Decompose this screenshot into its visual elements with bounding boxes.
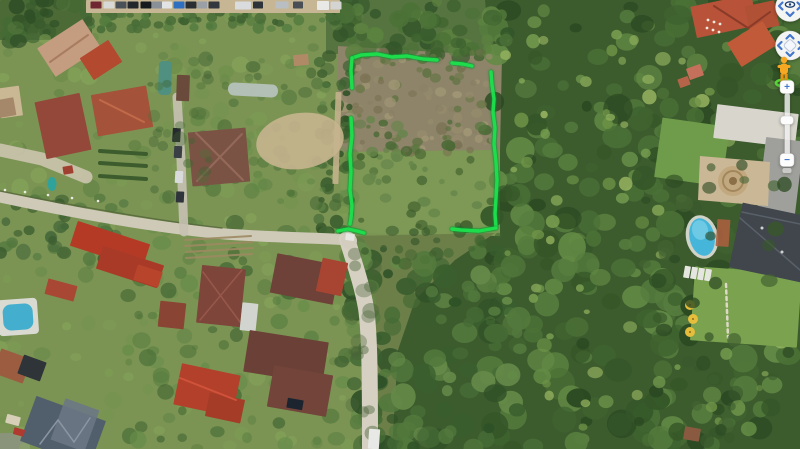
bottom-center-forest-blob [426,286,438,297]
plot-scrub-speckle-blob [352,106,363,114]
plot-bushes-blob [366,147,378,157]
bottom-center-forest-blob [513,344,527,355]
zoom-slider-handle[interactable] [781,116,794,125]
forest-right-blob [681,46,695,59]
forest-highlights-blob [623,321,637,333]
forest-highlights-blob [674,364,680,370]
garden-shed [176,75,190,101]
forest-right-blob [741,422,757,437]
right-overhang-blob [692,401,702,411]
plot-bushes-blob [366,116,375,124]
forest-highlights-blob [540,129,550,139]
left-sparse-blob [246,213,257,223]
forest-right-blob [604,358,632,381]
house-roof [158,301,187,330]
bottom-center-forest-blob [509,403,525,416]
plot-scrub-speckle-blob [355,84,365,93]
parked-van [276,2,289,9]
left-sparse-blob [70,353,81,361]
plot-bushes-blob [450,190,457,196]
mid-left-trees-blob [313,436,322,445]
right-overhang-blob [727,333,741,347]
pegman-arms [778,65,791,68]
left-sparse-blob [177,328,193,343]
parked-truck [317,1,329,10]
zoom-in-label: + [784,82,790,93]
forest-right-blob [535,292,560,317]
plot-scrub-speckle-blob [353,103,359,108]
right-overhang-blob [736,160,747,171]
left-sparse-blob [171,44,189,59]
plot-bushes-blob [392,154,400,162]
left-corner-dark-blob [26,33,40,44]
mid-left-trees-blob [139,349,157,366]
plot-scrub-speckle-blob [455,123,461,128]
forest-highlights-blob [652,205,664,216]
plot-scrub-speckle-blob [378,79,384,84]
right-overhang-blob [777,177,792,192]
forest-right-blob [670,378,688,391]
house-annex [240,302,259,332]
plot-scrub-speckle-blob [435,105,444,112]
forest-highlights-blob [542,380,551,388]
satellite-imagery[interactable]: + − [0,0,800,449]
plot-bushes-blob [474,181,486,191]
plot-scrub-speckle-blob [373,106,382,114]
right-overhang-blob [665,175,683,188]
parked-car [128,2,139,9]
plot-scrub-speckle-blob [471,109,483,118]
garden-trees-blob [198,52,213,67]
plot-scrub-speckle-blob [360,140,365,145]
plot-scrub-speckle-blob [483,80,491,87]
top-band-trees-blob [499,34,512,47]
bottom-center-forest-blob [502,297,512,305]
parked-car [162,2,172,9]
left-sparse-blob [143,384,154,395]
plot-bushes-blob [415,224,421,229]
right-overhang-blob [724,432,735,443]
left-sparse-blob [355,13,363,21]
lane-overhang-blob [162,190,175,203]
forest-highlights-blob [540,111,547,119]
forest-highlights-blob [587,367,603,378]
forest-highlights-blob [576,284,584,292]
plot-scrub-speckle-blob [475,135,483,143]
forest-highlights-blob [519,78,525,84]
lane-overhang-blob [148,110,160,122]
mid-left-trees-blob [135,421,148,432]
garden-trees-blob [247,131,255,139]
forest-highlights-blob [689,97,701,107]
parked-car [174,146,183,158]
plot-bottom-trees-blob [409,228,419,236]
forest-highlights-blob [620,121,628,128]
garden-trees-blob [281,84,288,90]
right-overhang-blob [715,424,726,436]
forest-highlights-blob [655,52,671,66]
mid-left-trees-blob [242,432,252,443]
forest-right-blob [552,407,576,433]
zoom-slider-track[interactable] [785,93,791,157]
right-overhang-blob [739,176,749,184]
plot-bushes-blob [409,161,414,166]
forest-highlights-blob [635,216,649,229]
left-sparse-blob [15,121,23,127]
left-sparse-blob [7,21,24,34]
forest-highlights-blob [641,149,651,158]
plot-scrub-speckle-blob [453,113,463,123]
bottom-center-forest-blob [412,363,435,387]
left-sparse-blob [339,395,346,401]
plot-scrub-speckle-blob [452,91,462,98]
forest-highlights-blob [678,58,685,65]
plot-scrub-speckle-blob [419,84,428,92]
right-overhang-blob [676,196,694,212]
forest-right-blob [657,88,669,99]
bottom-center-forest-blob [438,429,453,445]
right-overhang-blob [657,240,674,257]
left-sparse-blob [153,33,159,39]
plot-bushes-blob [408,201,421,212]
lane-overhang-blob [189,138,196,145]
mid-left-trees-blob [273,296,281,305]
left-sparse-blob [136,42,147,53]
left-sparse-blob [54,89,65,97]
forest-right-blob [750,63,773,86]
hedge-row-blob [166,16,176,26]
below-road-trees-blob [24,226,35,236]
right-overhang-blob [705,332,714,341]
umbrella-pole [689,331,691,333]
mid-left-trees-blob [286,190,295,197]
lane-overhang-blob [152,165,160,172]
right-overhang-blob [669,255,680,263]
forest-highlights-blob [619,177,633,191]
hedge-row-blob [189,24,198,32]
plot-bushes-blob [422,167,428,173]
plot-left-treerow-blob [346,104,352,110]
pegman-icon[interactable] [781,57,787,63]
garden-trees-blob [246,61,261,72]
plot-bottom-trees-blob [495,233,502,239]
forest-highlights-blob [599,395,614,408]
right-overhang-blob [686,297,700,308]
forest-right-blob [515,80,537,98]
house-roof [683,426,701,442]
left-sparse-blob [67,67,82,82]
below-road-trees-blob [94,194,106,203]
mid-left-trees-blob [177,433,187,442]
garden-trees-blob [310,196,323,210]
left-corner-dark-blob [26,14,36,24]
fence-post [47,194,50,197]
plot-bushes-blob [381,159,394,169]
garden-trees-blob [254,73,262,81]
bottom-center-forest-blob [350,415,364,430]
top-band-trees-blob [370,9,381,19]
plot-bottom-trees-blob [386,226,399,236]
plot-bushes-blob [417,176,428,186]
forest-highlights-blob [535,285,545,293]
plot-bottom-trees-blob [429,251,437,257]
lane-overhang-blob [196,82,206,89]
aerial-scene [0,0,800,449]
left-sparse-blob [101,409,113,422]
umbrella-pole [692,318,694,320]
gate [345,233,355,241]
below-road-trees-blob [14,230,23,237]
right-overhang-blob [649,274,666,289]
top-band-trees-blob [483,10,502,26]
left-sparse-blob [259,251,272,262]
below-road-trees-blob [53,221,67,234]
hedge-row-blob [206,21,217,31]
garden-trees-blob [258,179,273,191]
plot-bottom-trees-blob [476,237,485,246]
outline-left-upper [351,58,352,88]
plot-left-treerow-blob [326,169,333,175]
garden-trees-blob [249,157,259,166]
left-sparse-blob [35,267,47,277]
garden-trees-blob [298,87,312,98]
bottom-center-forest-blob [436,314,447,324]
plot-scrub-speckle-blob [430,136,435,140]
forest-right-blob [588,49,609,65]
bottom-center-forest-blob [442,385,453,396]
plot-scrub-speckle-blob [476,100,487,108]
bottom-center-forest-blob [387,414,398,424]
parked-car [176,191,185,202]
mid-left-trees-blob [130,431,147,449]
lane-overhang-blob [183,159,193,168]
road-tree-shadows-blob [349,261,361,272]
mid-left-trees-blob [120,289,135,302]
dormer-window [707,19,710,22]
left-sparse-blob [78,267,94,283]
plot-bottom-trees-blob [421,227,430,236]
bottom-center-forest-blob [484,324,509,343]
driveway-medallion-center [729,177,737,185]
forest-highlights-blob [603,178,616,190]
lane-overhang-blob [199,149,211,158]
hedge-row-blob [293,15,304,26]
hedge-row-blob [319,17,325,22]
parked-car [175,171,184,183]
plot-scrub-speckle-blob [412,138,423,146]
below-road-trees-blob [48,236,57,245]
lane-overhang-blob [155,82,164,91]
plot-bottom-trees-blob [411,238,420,246]
right-overhang-blob [761,274,778,287]
garden-trees-blob [277,198,284,204]
lane-overhang-blob [158,141,169,151]
plot-bushes-blob [385,141,396,150]
mid-left-trees-blob [271,314,288,329]
forest-highlights-blob [546,236,555,245]
plot-bushes-blob [384,131,392,139]
mid-left-trees-blob [157,384,174,400]
mid-left-trees-blob [134,311,142,319]
forest-right-blob [622,152,638,167]
forest-highlights-blob [567,175,579,184]
left-sparse-blob [3,48,13,57]
forest-right-blob [528,50,542,64]
bottom-center-forest-blob [444,248,454,258]
left-sparse-blob [163,413,175,423]
forest-right-blob [660,98,679,118]
forest-right-blob [703,387,721,404]
left-corner-dark-blob [10,34,27,48]
forest-highlights-blob [546,333,554,339]
mid-left-trees-blob [180,345,197,358]
map-viewport[interactable]: + − [0,0,800,449]
parked-car [104,2,115,9]
plot-scrub-speckle-blob [426,95,432,100]
plot-bushes-blob [357,153,365,160]
left-sparse-blob [248,415,257,424]
left-sparse-blob [140,200,152,210]
right-overhang-blob [702,182,716,194]
left-sparse-blob [104,392,121,409]
garden-trees-blob [306,68,316,79]
forest-right-blob [716,76,738,98]
forest-right-blob [517,236,536,255]
plot-scrub-speckle-blob [428,119,434,125]
forest-highlights-blob [500,50,511,60]
mid-left-trees-blob [329,316,339,326]
forest-right-blob [743,89,762,104]
garden-trees-blob [281,90,297,106]
plot-bushes-blob [475,122,487,131]
dormer-window [713,21,716,24]
forest-highlights-blob [537,338,552,352]
parked-car [174,2,185,9]
forest-right-blob [578,210,601,234]
forest-right-blob [480,206,503,227]
left-sparse-blob [3,275,11,284]
forest-right-blob [590,269,611,286]
plot-scrub-speckle-blob [390,62,396,66]
left-sparse-blob [154,426,165,435]
plot-scrub-speckle-blob [435,87,446,97]
forest-highlights-blob [756,385,762,391]
hedge-row-blob [275,20,285,27]
mid-left-trees-blob [230,328,243,342]
mid-left-trees-blob [157,436,165,443]
forest-highlights-blob [706,402,717,412]
plot-scrub-speckle-blob [469,50,474,56]
road-tree-shadows-blob [345,312,359,325]
bottom-center-forest-blob [507,371,517,380]
road-tree-shadows-blob [355,284,372,298]
top-band-trees-blob [465,8,480,19]
bottom-center-forest-blob [501,255,526,277]
fence-post [97,200,100,203]
forest-highlights-blob [576,75,586,84]
right-overhang-blob [682,356,696,367]
bottom-center-forest-blob [452,347,468,359]
garden-trees-blob [307,178,315,184]
mid-left-trees-blob [328,432,345,445]
plot-bushes-blob [472,201,483,209]
forest-right-blob [579,178,600,197]
bottom-center-forest-blob [347,377,362,390]
forest-highlights-blob [705,88,715,96]
plot-bottom-trees-blob [395,245,403,254]
left-sparse-blob [199,38,206,44]
right-overhang-blob [783,347,795,358]
right-overhang-blob [707,163,716,171]
right-overhang-blob [696,356,710,371]
forest-right-blob [542,143,563,159]
hedge-row-blob [154,21,164,28]
right-overhang-blob [697,259,707,268]
parked-truck [331,2,342,10]
parked-van [235,2,251,10]
right-overhang-blob [728,386,743,401]
bottom-center-forest-blob [388,352,405,367]
below-road-trees-blob [7,240,16,248]
bottom-center-forest-blob [488,307,500,316]
right-overhang-blob [767,222,784,237]
plot-scrub-speckle-blob [366,125,370,129]
below-road-trees-blob [83,252,96,266]
forest-highlights-blob [521,157,533,168]
garden-trees-blob [319,187,325,192]
left-sparse-blob [7,342,21,352]
top-band-trees-blob [354,23,369,34]
bottom-center-forest-blob [449,297,462,307]
plot-bushes-blob [382,175,392,183]
road-tree-shadows-blob [368,260,382,274]
fence-post [4,189,7,192]
forest-right-blob [642,434,654,447]
forest-highlights-blob [545,391,554,401]
plot-bushes-blob [391,121,404,132]
forest-highlights-blob [546,215,560,228]
forest-highlights-blob [529,294,538,303]
top-band-trees-blob [401,2,421,22]
lane-overhang-blob [197,170,210,183]
right-overhang-blob [762,239,775,251]
road-tree-shadows-blob [364,405,375,414]
parked-car [209,2,220,9]
hedge-row-blob [236,15,245,24]
plot-bushes-blob [374,131,380,137]
plot-bushes-blob [401,146,412,157]
garden-trees-blob [245,118,254,125]
garden-shed [293,54,309,66]
plot-bushes-blob [456,168,464,176]
plot-bushes-blob [353,160,366,170]
plot-scrub-speckle-blob [466,147,473,154]
left-sparse-blob [219,183,235,198]
plot-scrub-speckle-blob [357,114,362,118]
plot-left-treerow-blob [337,85,344,91]
garden-trees-blob [320,63,334,75]
forest-highlights-blob [632,390,643,400]
plot-bottom-trees-blob [361,247,369,255]
plot-left-treerow-blob [329,199,341,211]
left-sparse-blob [289,37,296,43]
garden-trees-blob [320,101,327,107]
forest-highlights-blob [606,114,616,121]
left-sparse-blob [296,67,308,78]
bottom-center-forest-blob [507,307,531,330]
plot-bushes-blob [358,218,364,223]
plot-scrub-speckle-blob [375,95,382,101]
